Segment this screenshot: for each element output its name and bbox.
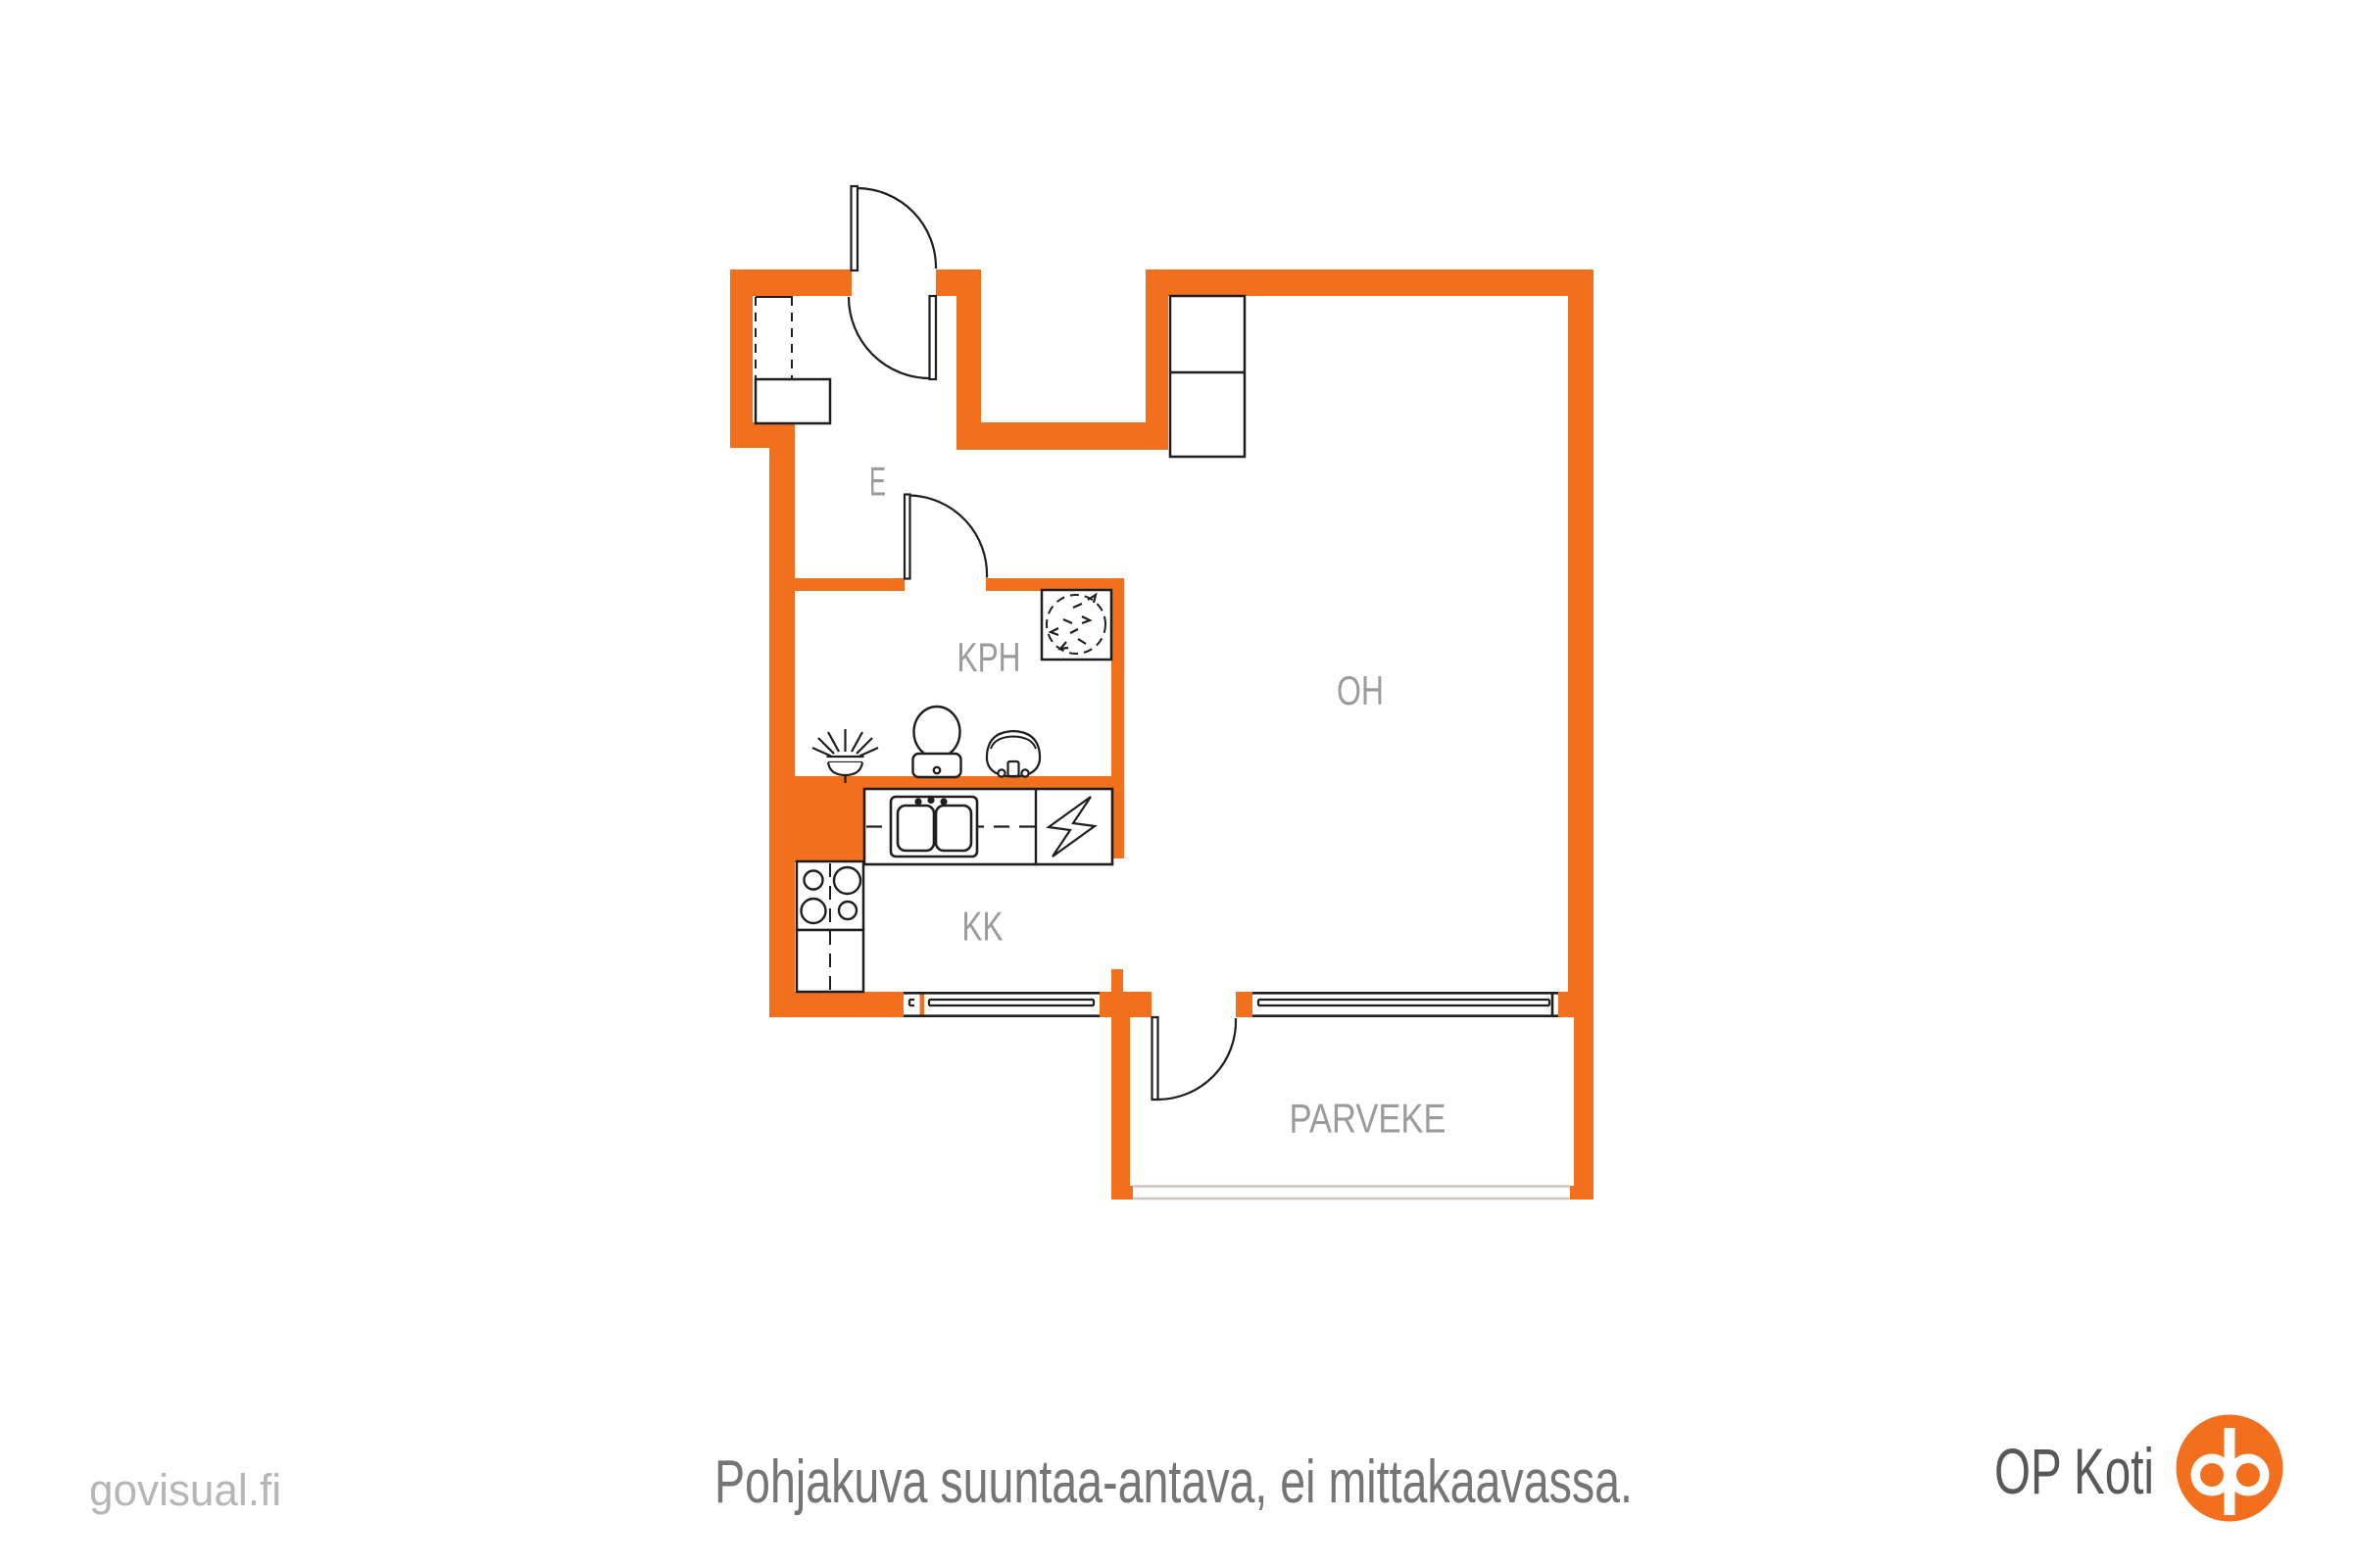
svg-text:govisual.fi: govisual.fi — [89, 1465, 281, 1515]
svg-text:E: E — [869, 459, 886, 505]
svg-text:PARVEKE: PARVEKE — [1290, 1096, 1446, 1142]
svg-text:KK: KK — [962, 904, 1004, 950]
svg-text:KPH: KPH — [957, 634, 1021, 680]
svg-text:OP Koti: OP Koti — [1994, 1435, 2154, 1507]
svg-text:OH: OH — [1337, 667, 1384, 713]
svg-text:Pohjakuva suuntaa-antava, ei m: Pohjakuva suuntaa-antava, ei mittakaavas… — [714, 1448, 1633, 1516]
